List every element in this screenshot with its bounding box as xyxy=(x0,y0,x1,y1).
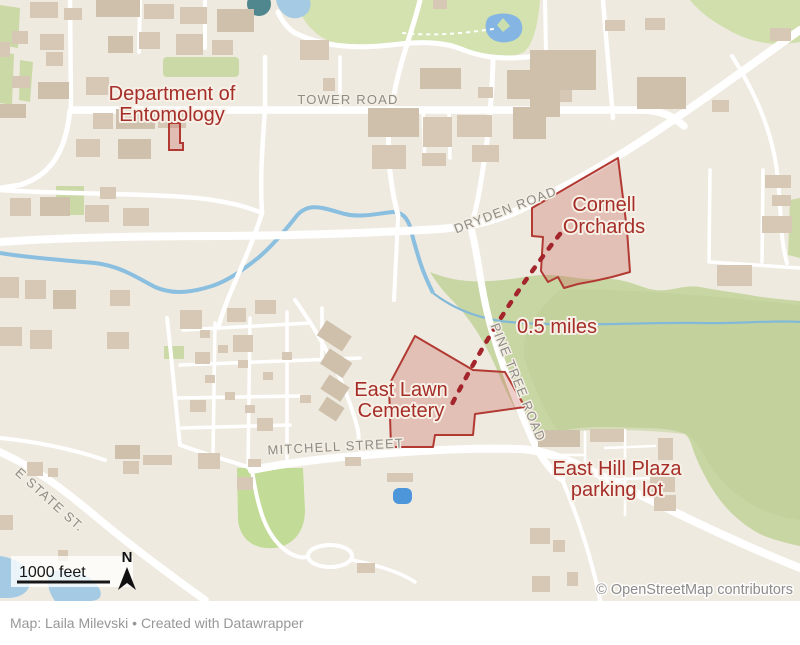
scale-bar: 1000 feet xyxy=(11,556,133,587)
north-label: N xyxy=(122,549,133,566)
cemetery-label-line2: Cemetery xyxy=(358,400,445,422)
entomology-building-highlight[interactable] xyxy=(169,123,183,150)
footer-credit-bar: Map: Laila Milevski • Created with Dataw… xyxy=(0,601,800,645)
scale-bar-label: 1000 feet xyxy=(19,564,86,581)
orchards-label-line1: Cornell xyxy=(572,194,635,216)
tower-road-label: TOWER ROAD xyxy=(297,92,398,107)
datawrapper-map-figure: TOWER ROAD DRYDEN ROAD MITCHELL STREET P… xyxy=(0,0,800,645)
orchards-label-line2: Orchards xyxy=(563,216,645,238)
plaza-label-line2: parking lot xyxy=(571,479,664,501)
distance-label: 0.5 miles xyxy=(517,316,597,338)
entomology-label-line2: Entomology xyxy=(119,104,225,126)
map-canvas[interactable]: TOWER ROAD DRYDEN ROAD MITCHELL STREET P… xyxy=(0,0,800,601)
footer-credit-text: Map: Laila Milevski • Created with Dataw… xyxy=(10,615,304,631)
entomology-label-line1: Department of xyxy=(109,83,236,105)
cemetery-label-line1: East Lawn xyxy=(354,379,447,401)
osm-attribution-link[interactable]: © OpenStreetMap contributors xyxy=(596,582,793,598)
osm-map: TOWER ROAD DRYDEN ROAD MITCHELL STREET P… xyxy=(0,0,800,601)
plaza-label-line1: East Hill Plaza xyxy=(553,458,683,480)
